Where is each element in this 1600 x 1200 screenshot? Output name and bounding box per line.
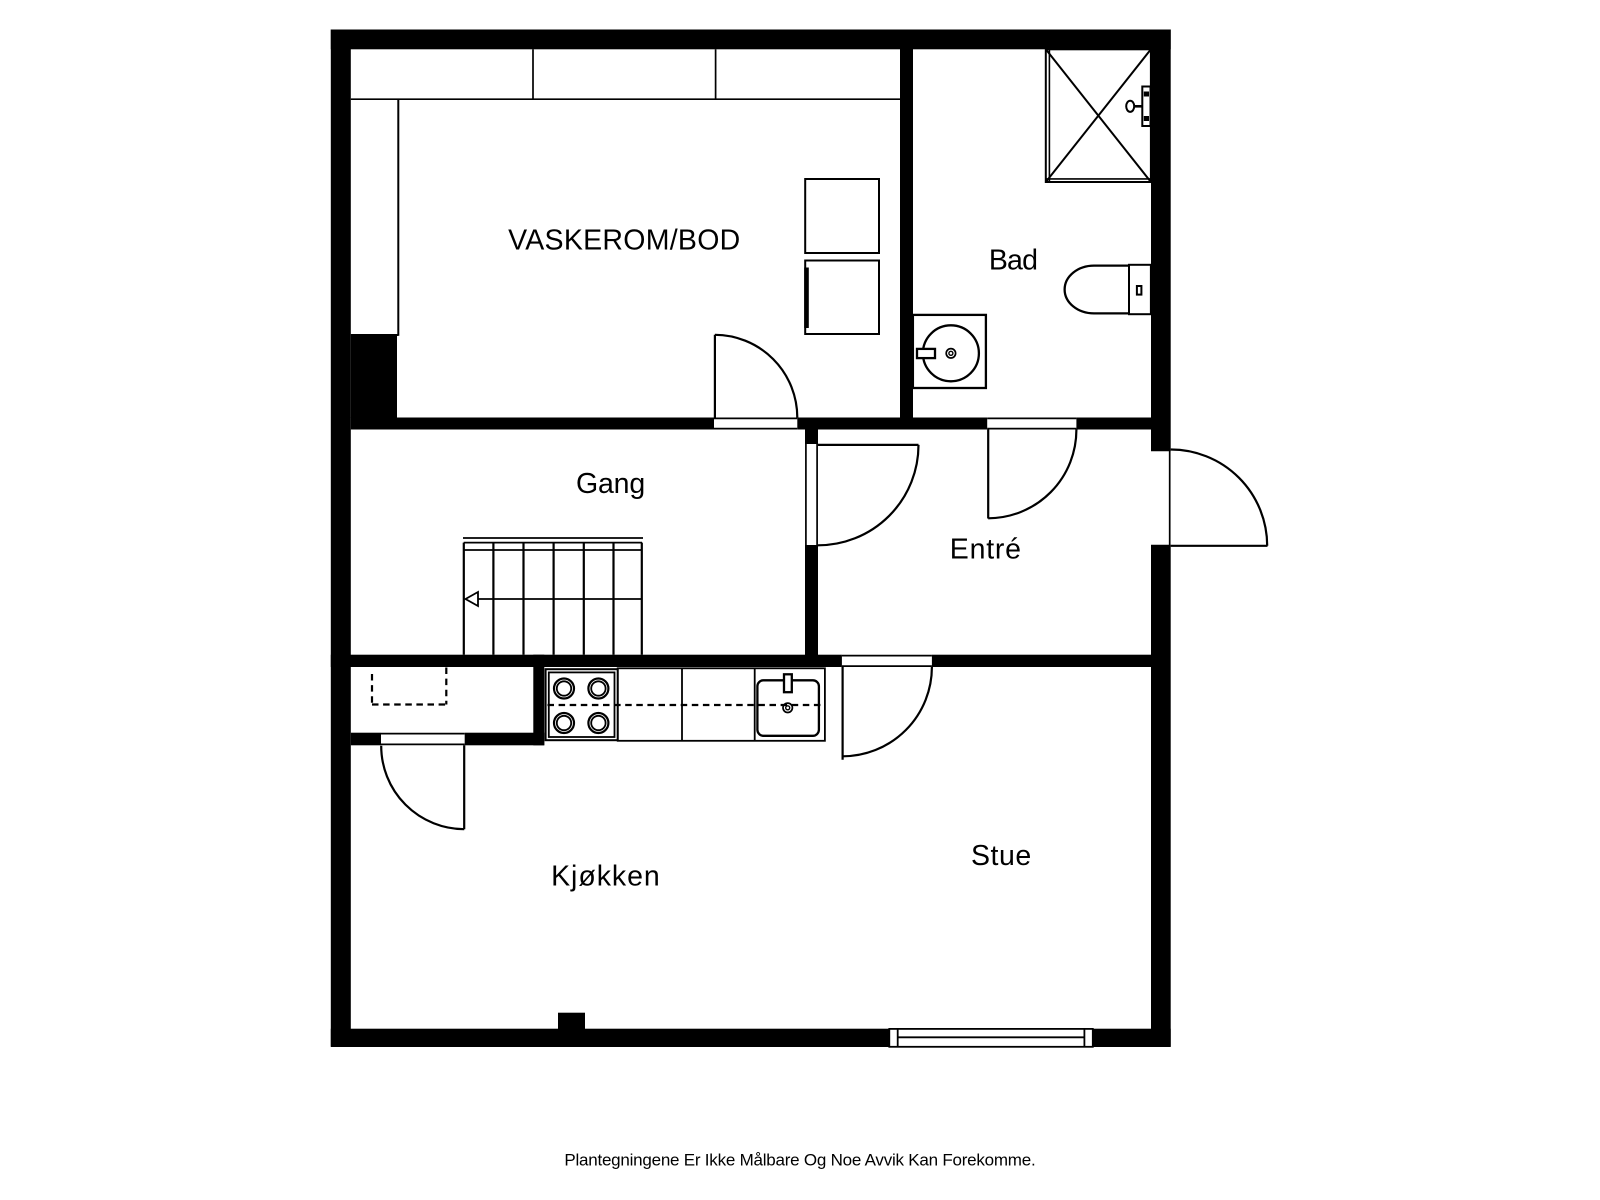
svg-text:Gang: Gang bbox=[576, 468, 645, 500]
svg-text:Stue: Stue bbox=[971, 840, 1032, 872]
svg-text:Entré: Entré bbox=[950, 534, 1022, 566]
svg-text:Bad: Bad bbox=[989, 245, 1037, 277]
svg-text:VASKEROM/BOD: VASKEROM/BOD bbox=[508, 224, 740, 256]
svg-text:Plantegningene Er Ikke Målbare: Plantegningene Er Ikke Målbare Og Noe Av… bbox=[564, 1151, 1035, 1170]
svg-text:Kjøkken: Kjøkken bbox=[551, 860, 661, 892]
